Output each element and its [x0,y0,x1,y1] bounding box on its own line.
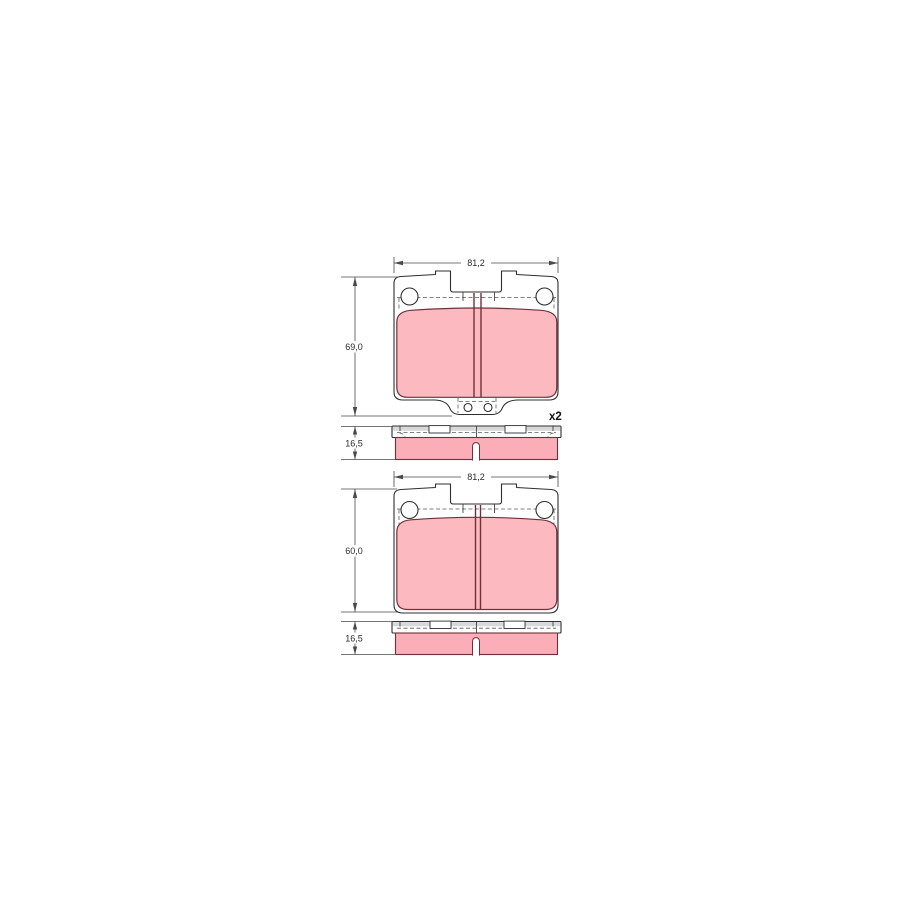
pad2-side-center-slot [473,638,480,656]
brake-pad-technical-drawing: 81,2 69,0 x2 [0,0,915,915]
pad1-right-pin-hole [536,288,553,305]
pad1-side-center-slot [473,443,480,461]
pad1-height-dimension: 69,0 [345,342,363,352]
pad2-thickness-dimension: 16,5 [345,634,363,644]
pad1-side-notch-left [429,426,450,433]
pad1-left-pin-hole [401,288,418,305]
pad2-side-view [392,621,561,656]
pad1-front-view [394,271,558,415]
pad2-friction-material [397,517,557,609]
pad2-side-notch-right [504,621,525,628]
pad2-side-notch-left [430,621,451,628]
pad1-tab-hole-right [484,404,492,412]
pad2-width-dimension: 81,2 [467,472,485,482]
pad1-tab-hole-left [464,404,472,412]
pad2-left-pin-hole [401,502,418,519]
pad1-side-dimensions: 16,5 [340,427,397,460]
pad2-front-view [394,484,558,613]
pad1-side-notch-right [505,426,526,433]
pad1-thickness-dimension: 16,5 [345,439,363,449]
pad1-width-dimension: 81,2 [467,258,485,268]
pad2-height-dimension: 60,0 [345,546,363,556]
pad1-side-view [392,426,561,461]
pad1-friction-material [397,308,557,397]
pad2-side-dimensions: 16,5 [340,622,397,655]
pad1-quantity-label: x2 [549,411,562,423]
pad2-right-pin-hole [536,502,553,519]
